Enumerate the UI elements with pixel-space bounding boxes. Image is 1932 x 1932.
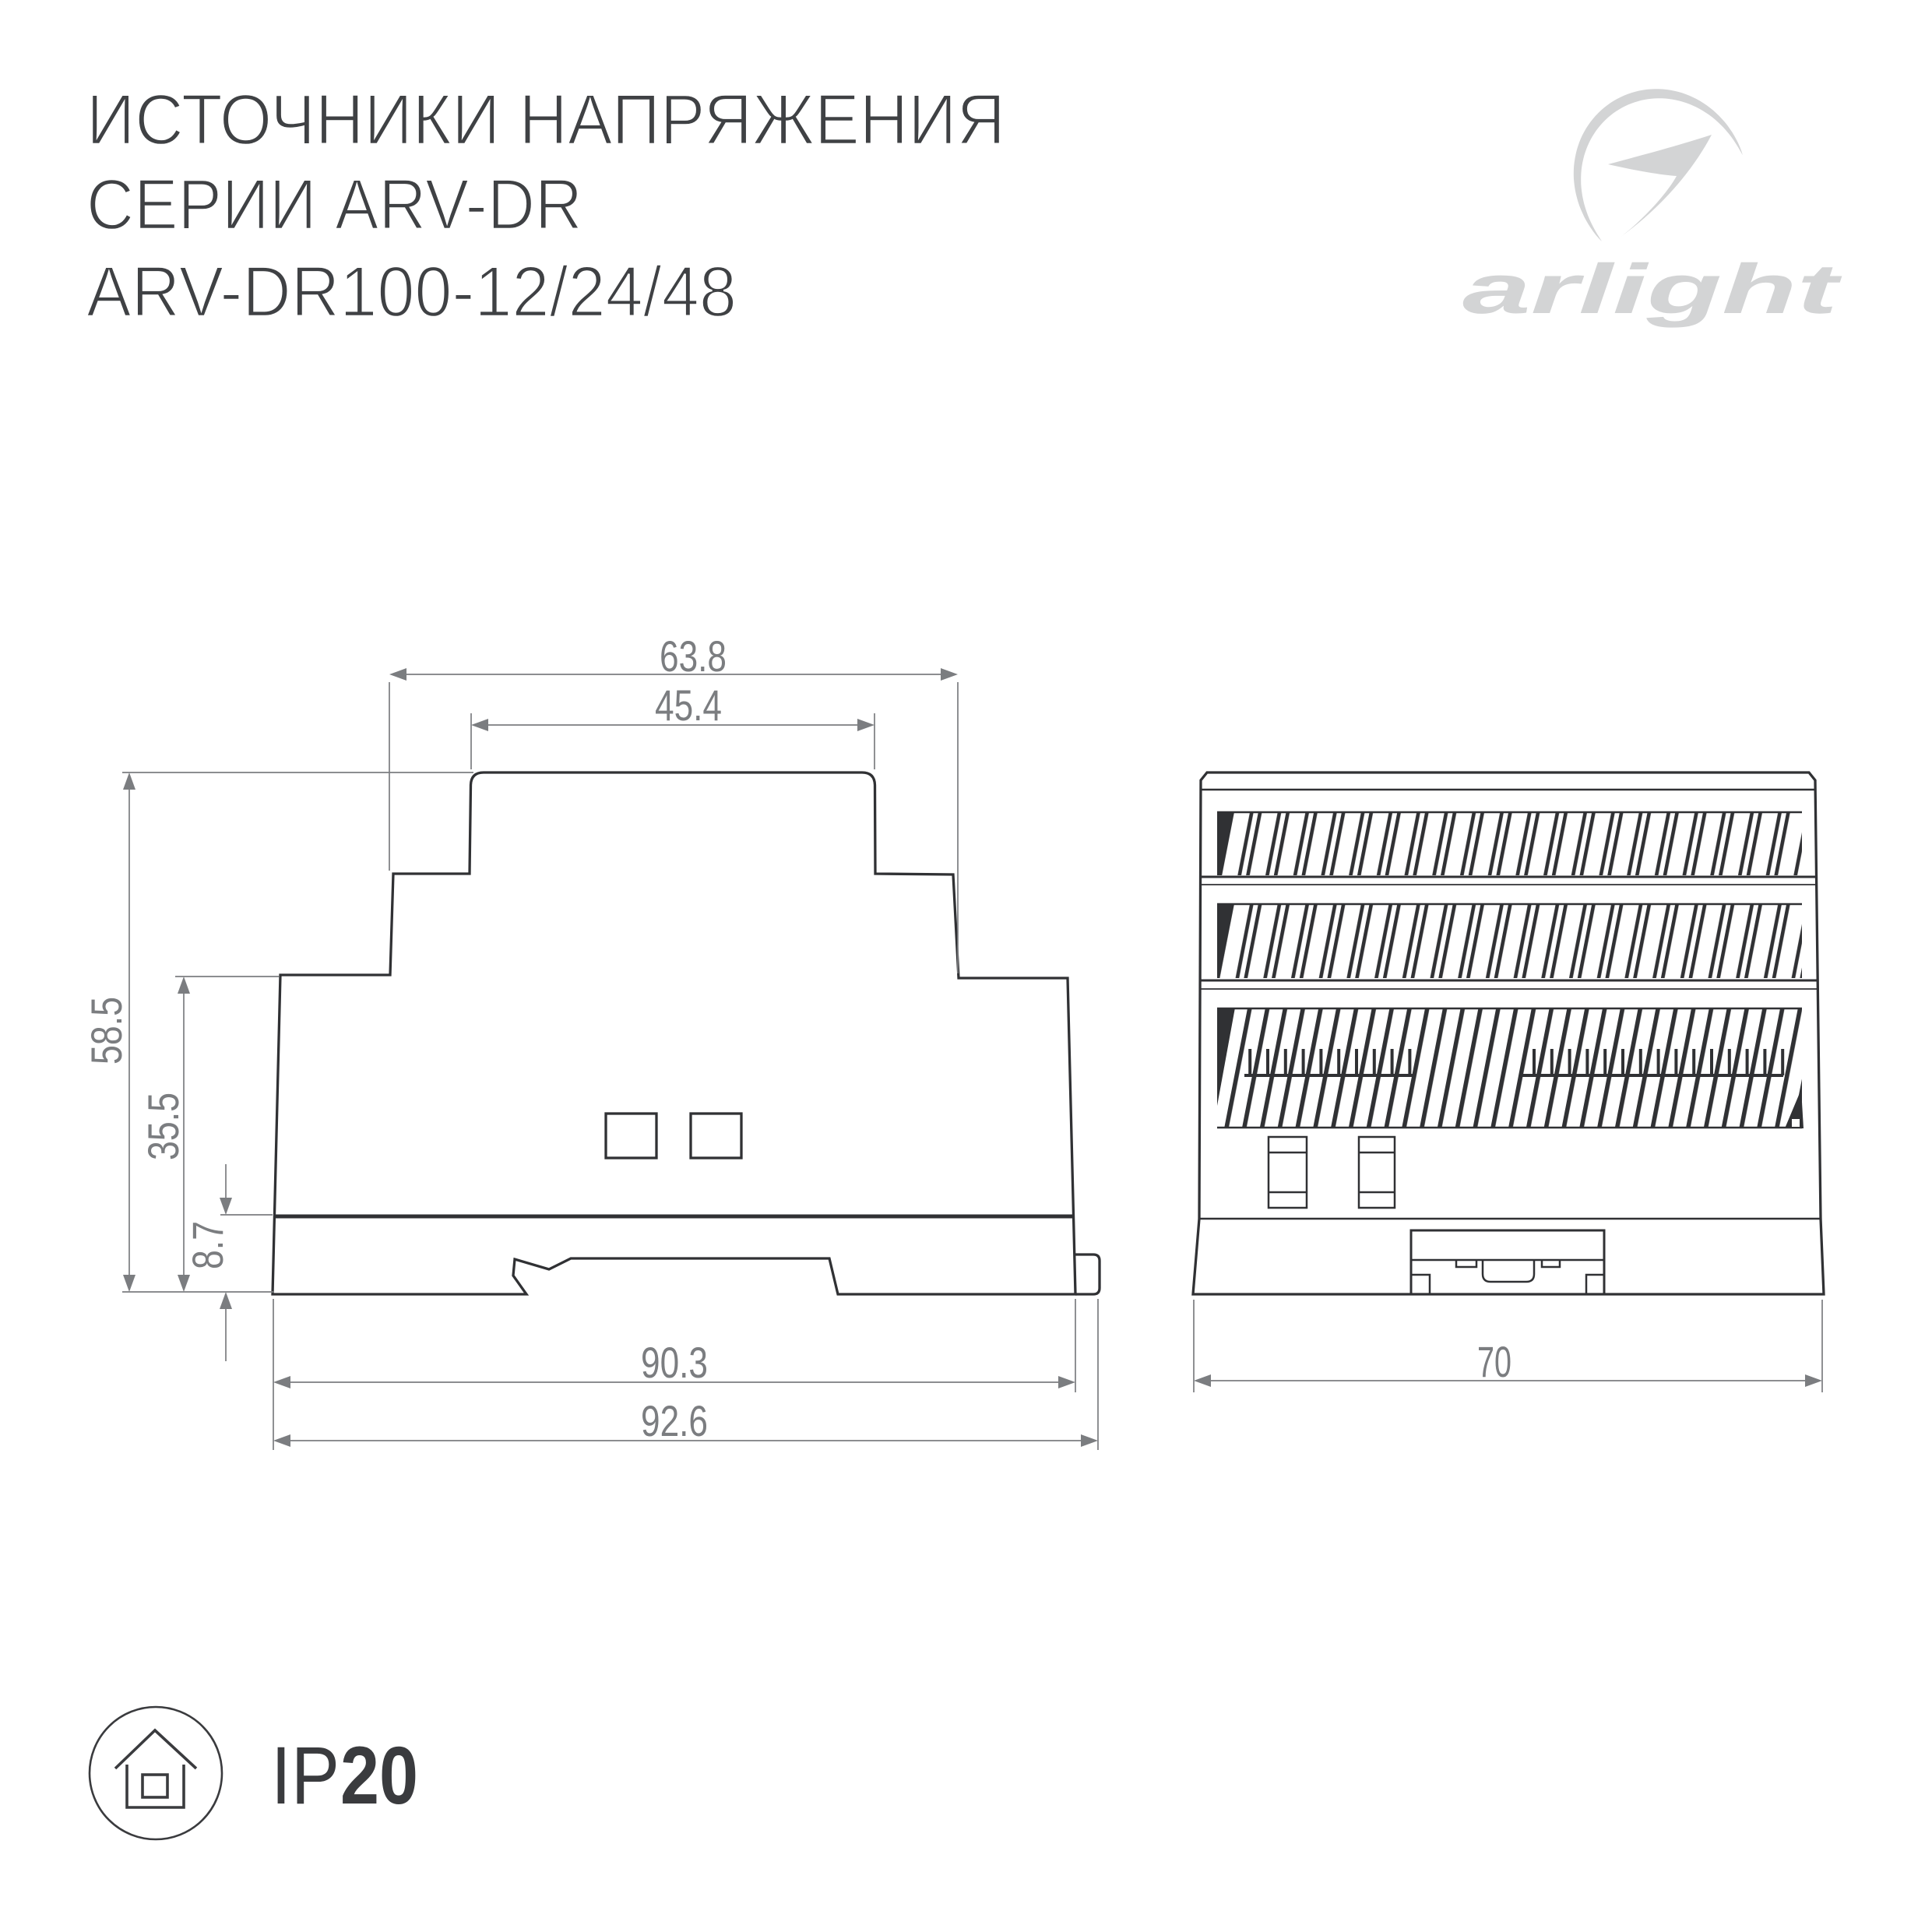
svg-text:58.5: 58.5 — [82, 997, 131, 1065]
svg-text:IP: IP — [271, 1730, 340, 1821]
svg-text:ARV-DR100-12/24/48: ARV-DR100-12/24/48 — [86, 252, 737, 332]
svg-text:90.3: 90.3 — [641, 1338, 708, 1387]
svg-text:20: 20 — [340, 1730, 418, 1821]
svg-text:92.6: 92.6 — [641, 1396, 708, 1445]
svg-text:70: 70 — [1477, 1337, 1511, 1386]
svg-text:arlight: arlight — [1462, 251, 1843, 329]
svg-text:8.7: 8.7 — [183, 1221, 232, 1269]
svg-text:СЕРИИ ARV-DR: СЕРИИ ARV-DR — [86, 165, 582, 245]
svg-text:63.8: 63.8 — [660, 632, 727, 681]
svg-text:45.4: 45.4 — [655, 681, 722, 730]
svg-text:ИСТОЧНИКИ НАПРЯЖЕНИЯ: ИСТОЧНИКИ НАПРЯЖЕНИЯ — [86, 80, 1005, 160]
svg-text:35.5: 35.5 — [139, 1093, 188, 1160]
